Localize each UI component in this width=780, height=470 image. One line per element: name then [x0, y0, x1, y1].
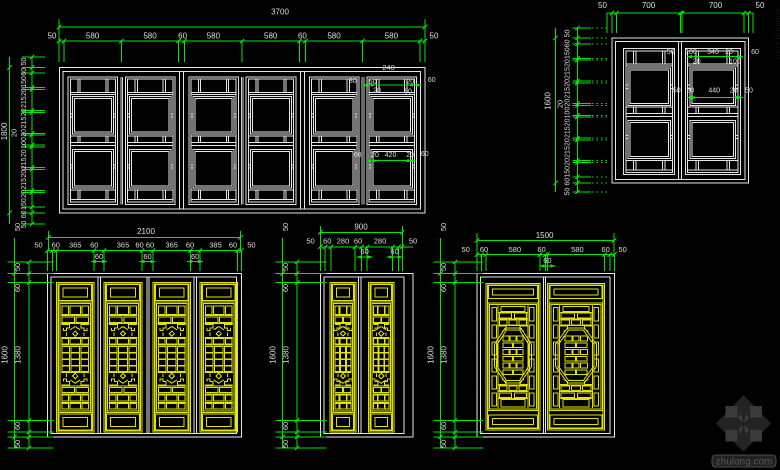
svg-text:50: 50	[439, 263, 448, 271]
svg-text:60: 60	[90, 241, 98, 250]
svg-text:60: 60	[95, 252, 103, 261]
svg-text:20: 20	[565, 118, 572, 126]
svg-text:20: 20	[730, 88, 738, 95]
svg-text:580: 580	[327, 32, 341, 41]
svg-text:3700: 3700	[271, 8, 289, 17]
svg-text:1800: 1800	[0, 122, 9, 140]
svg-text:580: 580	[571, 245, 584, 254]
svg-text:1600: 1600	[269, 346, 278, 364]
svg-text:60: 60	[143, 252, 151, 261]
svg-text:60: 60	[354, 237, 362, 246]
svg-text:100: 100	[729, 59, 741, 66]
svg-text:20: 20	[21, 190, 28, 198]
svg-text:80: 80	[349, 78, 357, 85]
svg-text:50: 50	[565, 188, 572, 196]
svg-text:1500: 1500	[536, 231, 554, 240]
svg-text:365: 365	[117, 241, 130, 250]
svg-text:1600: 1600	[544, 92, 553, 110]
svg-text:50: 50	[21, 58, 28, 66]
svg-text:700: 700	[642, 1, 656, 10]
svg-text:60: 60	[135, 241, 143, 250]
svg-text:50: 50	[745, 88, 753, 95]
svg-text:50: 50	[281, 223, 290, 231]
svg-text:50: 50	[439, 440, 448, 448]
svg-text:60: 60	[298, 32, 307, 41]
svg-text:215: 215	[21, 96, 28, 108]
svg-text:1600: 1600	[1, 346, 10, 364]
svg-text:215: 215	[21, 157, 28, 169]
svg-text:20: 20	[565, 138, 572, 146]
svg-text:50: 50	[21, 221, 28, 229]
svg-text:60: 60	[428, 77, 436, 84]
svg-text:50: 50	[247, 241, 255, 250]
svg-text:60: 60	[13, 284, 22, 292]
svg-text:60: 60	[191, 252, 199, 261]
svg-text:100: 100	[565, 107, 572, 119]
svg-text:20: 20	[565, 59, 572, 67]
svg-text:50: 50	[673, 88, 681, 95]
svg-text:215: 215	[565, 87, 572, 99]
svg-text:580: 580	[143, 32, 157, 41]
svg-text:215: 215	[21, 117, 28, 129]
svg-text:340: 340	[707, 49, 719, 56]
svg-text:700: 700	[709, 1, 723, 10]
svg-text:60: 60	[281, 284, 290, 292]
svg-text:150: 150	[21, 198, 28, 210]
svg-text:20: 20	[10, 129, 19, 137]
svg-text:365: 365	[69, 241, 82, 250]
svg-text:365: 365	[165, 241, 178, 250]
svg-text:100: 100	[685, 49, 697, 56]
svg-text:20: 20	[21, 149, 28, 157]
svg-text:385: 385	[209, 241, 222, 250]
svg-text:60: 60	[480, 245, 488, 254]
svg-text:20: 20	[565, 158, 572, 166]
svg-text:20: 20	[565, 79, 572, 87]
svg-text:20: 20	[21, 170, 28, 178]
svg-text:280: 280	[337, 237, 350, 246]
svg-text:60: 60	[360, 247, 368, 256]
svg-text:580: 580	[86, 32, 100, 41]
svg-text:280: 280	[374, 237, 387, 246]
svg-text:50: 50	[409, 237, 417, 246]
svg-text:50: 50	[667, 49, 675, 56]
svg-text:20: 20	[686, 88, 694, 95]
svg-text:60: 60	[439, 284, 448, 292]
svg-text:20: 20	[555, 100, 564, 108]
svg-text:100: 100	[21, 137, 28, 149]
svg-text:60: 60	[52, 241, 60, 250]
svg-text:215: 215	[565, 67, 572, 79]
svg-text:20: 20	[21, 88, 28, 96]
svg-text:150: 150	[565, 47, 572, 59]
svg-text:60: 60	[21, 68, 28, 76]
svg-text:50: 50	[306, 237, 314, 246]
svg-text:50: 50	[439, 223, 448, 231]
svg-text:50: 50	[281, 440, 290, 448]
svg-text:60: 60	[229, 241, 237, 250]
svg-text:150: 150	[21, 76, 28, 88]
svg-text:580: 580	[264, 32, 278, 41]
svg-text:50: 50	[13, 223, 22, 231]
svg-text:60: 60	[543, 256, 551, 265]
svg-text:580: 580	[509, 245, 522, 254]
svg-text:60: 60	[537, 245, 545, 254]
svg-text:50: 50	[34, 241, 42, 250]
svg-text:20: 20	[21, 108, 28, 116]
svg-text:50: 50	[756, 1, 765, 10]
svg-text:60: 60	[21, 210, 28, 218]
svg-text:900: 900	[354, 222, 368, 231]
svg-text:50: 50	[281, 263, 290, 271]
svg-text:50: 50	[598, 1, 607, 10]
svg-text:215: 215	[565, 126, 572, 138]
svg-text:2100: 2100	[137, 227, 155, 236]
svg-text:580: 580	[207, 32, 221, 41]
svg-text:20: 20	[406, 152, 414, 159]
svg-text:60: 60	[601, 245, 609, 254]
svg-text:zhulong.com: zhulong.com	[716, 457, 773, 468]
svg-text:60: 60	[565, 178, 572, 186]
svg-text:60: 60	[186, 241, 194, 250]
svg-text:50: 50	[462, 245, 470, 254]
svg-text:1600: 1600	[427, 346, 436, 364]
svg-text:60: 60	[323, 237, 331, 246]
svg-text:580: 580	[385, 32, 399, 41]
svg-text:20: 20	[725, 49, 733, 56]
svg-text:60: 60	[281, 422, 290, 430]
svg-text:60: 60	[390, 247, 398, 256]
svg-text:50: 50	[565, 30, 572, 38]
svg-text:60: 60	[404, 89, 412, 96]
svg-text:50: 50	[430, 32, 439, 41]
svg-text:50: 50	[618, 245, 626, 254]
svg-text:60: 60	[751, 49, 759, 56]
svg-text:50: 50	[13, 263, 22, 271]
svg-text:60: 60	[354, 152, 362, 159]
svg-text:20: 20	[371, 152, 379, 159]
svg-text:150: 150	[565, 166, 572, 178]
svg-text:20: 20	[693, 59, 701, 66]
svg-text:420: 420	[385, 152, 397, 159]
svg-text:60: 60	[178, 32, 187, 41]
svg-text:215: 215	[21, 178, 28, 190]
svg-text:20: 20	[21, 129, 28, 137]
svg-text:240: 240	[382, 63, 395, 72]
svg-text:60: 60	[565, 39, 572, 47]
svg-text:50: 50	[48, 32, 57, 41]
svg-text:20: 20	[373, 88, 381, 95]
svg-text:60: 60	[421, 151, 429, 158]
svg-text:60: 60	[146, 241, 154, 250]
svg-text:zhulong.com: zhulong.com	[774, 8, 780, 59]
svg-text:60: 60	[439, 422, 448, 430]
svg-text:440: 440	[708, 88, 720, 95]
svg-text:20: 20	[565, 99, 572, 107]
svg-text:215: 215	[565, 146, 572, 158]
svg-text:50: 50	[13, 440, 22, 448]
svg-text:60: 60	[13, 422, 22, 430]
